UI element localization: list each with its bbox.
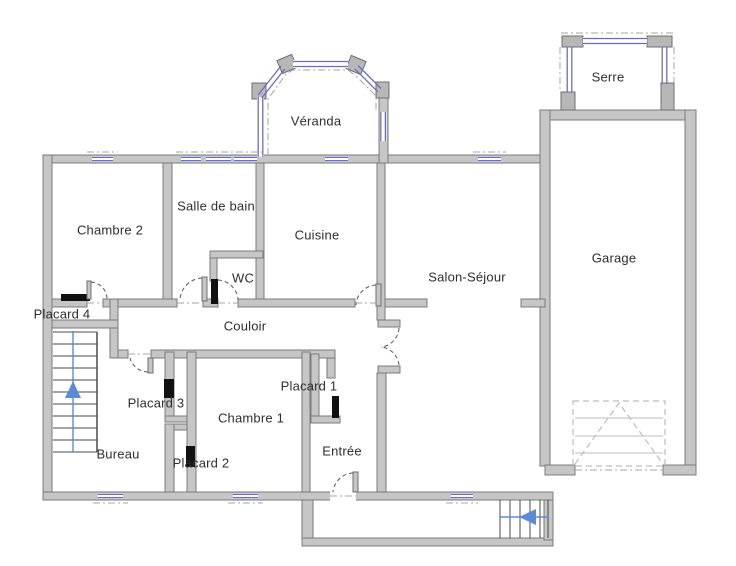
window-salon-top	[478, 156, 501, 162]
window-veranda-cuisine	[325, 156, 348, 162]
stairs-up-arrow-icon	[65, 381, 81, 398]
wall-entree-right	[377, 373, 386, 492]
double-door-salon	[381, 328, 399, 365]
room-label-garage: Garage	[592, 251, 637, 266]
door-chambre2	[87, 281, 107, 299]
veranda-bay	[252, 54, 389, 163]
wall-couloir-bottom-1	[118, 350, 128, 358]
window-salon-bottom	[451, 493, 473, 499]
room-label-entree: Entrée	[322, 444, 362, 459]
interior-stairs	[53, 331, 97, 452]
window-chambre1-bottom	[233, 493, 258, 499]
veranda-post-left	[252, 83, 266, 99]
stairs-exit-arrow-icon	[519, 509, 536, 525]
serre-post-top-left	[562, 36, 583, 47]
window-sdb-top-1	[181, 156, 201, 162]
wall-double-door-stub-bottom	[378, 366, 400, 373]
door-salle-de-bain	[180, 277, 207, 301]
floor-plan-drawing	[0, 0, 736, 566]
room-label-bureau: Bureau	[96, 447, 139, 462]
veranda-construction-line	[268, 70, 376, 155]
wall-chambre2-sdb	[163, 163, 172, 299]
veranda-post-right	[376, 82, 389, 98]
garage-wall-left	[540, 110, 550, 466]
wall-salon-right-stub	[521, 299, 545, 307]
room-label-chambre1: Chambre 1	[218, 411, 284, 426]
garage-door-symbol	[573, 401, 665, 470]
door-entree-front	[333, 472, 358, 492]
window-bureau-bottom	[98, 493, 123, 499]
exterior-windows	[92, 156, 501, 501]
wall-top	[43, 155, 540, 163]
room-label-wc: WC	[232, 271, 254, 286]
garage-wall-top	[540, 110, 696, 120]
placard4-door	[61, 294, 90, 301]
wall-double-door-stub-top	[378, 320, 400, 327]
garage-wall-bottom-left-stub	[545, 465, 575, 475]
serre-post-bottom-right	[661, 83, 674, 110]
wall-chambre1-left	[187, 352, 196, 492]
exterior-stairs	[500, 500, 548, 538]
room-label-salle-de-bain: Salle de bain	[177, 199, 255, 214]
serre-post-top-right	[647, 36, 672, 47]
wc-door	[211, 279, 218, 304]
veranda-post-top-right	[346, 55, 366, 74]
wall-left	[43, 155, 52, 500]
room-label-cuisine: Cuisine	[295, 228, 340, 243]
window-sdb-top-2	[206, 156, 231, 162]
room-label-chambre2: Chambre 2	[77, 223, 143, 238]
room-label-veranda: Véranda	[291, 114, 342, 129]
opening-dashes	[87, 152, 506, 503]
serre-post-bottom-left	[561, 92, 575, 110]
wall-sdb-cuisine	[256, 163, 264, 299]
wall-couloir-top-4	[238, 299, 355, 307]
wall-wc-top	[210, 251, 263, 258]
window-chambre2-top	[92, 156, 113, 162]
garage-wall-right	[685, 110, 696, 475]
wall-chambre1-right	[302, 352, 310, 492]
wall-wc-left	[210, 258, 217, 281]
room-label-placard3: Placard 3	[128, 396, 185, 411]
room-label-serre: Serre	[592, 70, 625, 85]
porch-wall-bottom	[302, 538, 553, 546]
interior-walls	[52, 163, 545, 492]
room-label-couloir: Couloir	[224, 319, 267, 334]
room-label-placard4: Placard 4	[34, 307, 91, 322]
placard1-door	[332, 396, 339, 418]
room-label-placard1: Placard 1	[281, 379, 338, 394]
garage-wall-bottom-right-stub	[663, 465, 696, 475]
room-label-placard2: Placard 2	[173, 456, 230, 471]
room-label-salon-sejour: Salon-Séjour	[428, 270, 506, 285]
wall-placard1-top-stub	[327, 358, 335, 378]
window-sdb-top-3	[234, 156, 257, 162]
floor-plan-canvas: Véranda Serre Chambre 2 Salle de bain Cu…	[0, 0, 736, 566]
door-bureau	[130, 358, 153, 373]
exterior-walls	[43, 110, 696, 546]
